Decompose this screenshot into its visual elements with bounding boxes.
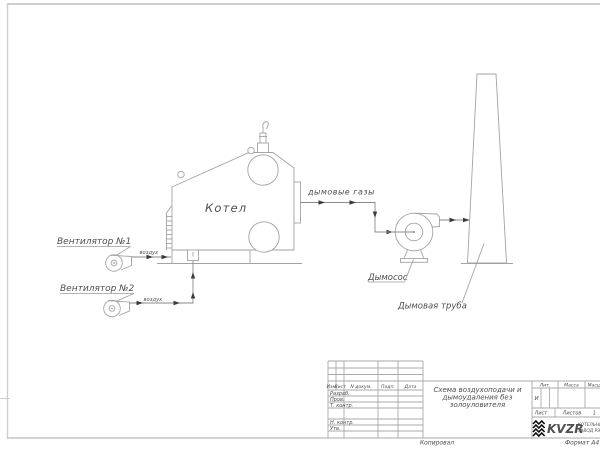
boiler-lower-drum	[249, 222, 279, 252]
fan1-group: воздух Вентилятор №1	[57, 237, 171, 271]
row-t-control: Т. контр.	[330, 403, 353, 409]
exhauster-label: Дымосос	[367, 273, 408, 283]
boiler-supports	[157, 250, 302, 264]
fan2-air-arrow-up-1	[191, 292, 195, 299]
sheets-value: 1	[593, 411, 596, 417]
copied-label: Копировал	[420, 440, 454, 447]
col-list: Лист	[333, 384, 346, 390]
fan1-air-arrow-2	[162, 255, 169, 259]
exhauster-stand	[401, 250, 428, 262]
col-sign: Подп.	[381, 384, 395, 390]
fan2-group: воздух Вентилятор №2	[60, 261, 195, 317]
exhauster-out-arrow-2	[463, 218, 470, 222]
col-doc-num: N докум.	[350, 384, 371, 390]
boiler-ladder	[167, 206, 173, 250]
smoke-exhauster-group: Дымосос	[367, 213, 471, 283]
fan2-air-arrow-2	[174, 301, 181, 305]
sheets-label: Листов	[562, 411, 582, 417]
flue-gas-label: дымовые газы	[307, 188, 375, 197]
company-logo: KVZR КОТЕЛЬНЫЙ ЗАВОД РЭ	[533, 421, 600, 436]
exhauster-center-dot	[413, 231, 415, 233]
fan1-label: Вентилятор №1	[57, 237, 131, 247]
fan2-air-arrow-up-2	[191, 272, 195, 279]
fan2-center-dot	[111, 308, 113, 310]
exhauster-leader	[405, 260, 414, 283]
chimney-body	[468, 74, 507, 263]
boiler-upper-drum	[248, 155, 278, 185]
sheet-footer: Копировал Формат А4	[420, 440, 599, 447]
schematic-svg: Котел воздух Вентилятор №1 воздух Вентил…	[0, 0, 600, 450]
fan2-leader	[116, 294, 135, 302]
boiler-group: Котел	[157, 122, 302, 264]
fan2-label: Вентилятор №2	[60, 284, 135, 294]
lit-value: И	[534, 396, 538, 402]
col-date: Дата	[404, 384, 417, 390]
flue-arrow-down	[373, 212, 377, 219]
flue-arrow-1	[319, 200, 326, 204]
fan1-center-dot	[113, 262, 115, 264]
boiler-label: Котел	[205, 201, 247, 215]
company-name-line2: ЗАВОД РЭ	[578, 428, 600, 434]
fan1-leader	[116, 247, 131, 256]
boiler-safety-valve	[258, 122, 269, 153]
company-name-line1: КОТЕЛЬНЫЙ	[578, 421, 600, 428]
sheet-label: Лист	[534, 411, 549, 417]
fan1-air-label: воздух	[140, 250, 160, 256]
mass-header: Масса	[564, 383, 579, 389]
exhauster-out-arrow-1	[450, 218, 457, 222]
boiler-flue-outlet	[294, 182, 301, 223]
chimney-group: Дымовая труба	[397, 74, 513, 312]
fan2-air-arrow-1	[137, 301, 144, 305]
row-approved: Утв.	[330, 426, 341, 432]
doc-title-line3: золоуловителя	[450, 401, 505, 409]
kvzr-logo-icon	[533, 421, 545, 436]
boiler-lug-right	[248, 147, 254, 153]
lit-header: Лит.	[539, 383, 551, 389]
scale-header: Масштаб	[588, 383, 600, 389]
title-block: Изм. Лист N докум. Подп. Дата Разраб. Пр…	[327, 361, 600, 438]
boiler-lug-left	[178, 171, 184, 177]
drawing-sheet: Котел воздух Вентилятор №1 воздух Вентил…	[0, 0, 600, 450]
flue-arrow-2	[350, 200, 357, 204]
format-label: Формат А4	[565, 440, 599, 447]
chimney-label: Дымовая труба	[397, 302, 467, 312]
fan2-air-label: воздух	[144, 297, 164, 303]
